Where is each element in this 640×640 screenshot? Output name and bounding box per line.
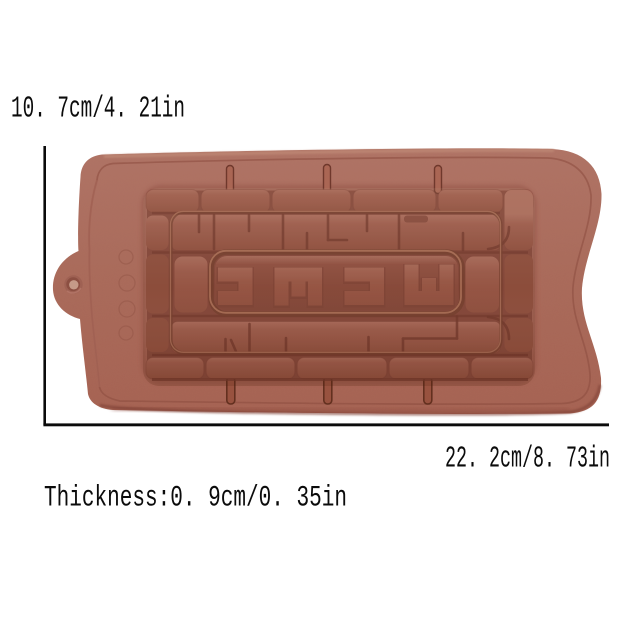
svg-text:10. 7cm/4. 21in: 10. 7cm/4. 21in [11,92,185,127]
svg-text:Thickness:0. 9cm/0. 35in: Thickness:0. 9cm/0. 35in [44,482,347,516]
svg-text:22. 2cm/8. 73in: 22. 2cm/8. 73in [445,442,610,477]
